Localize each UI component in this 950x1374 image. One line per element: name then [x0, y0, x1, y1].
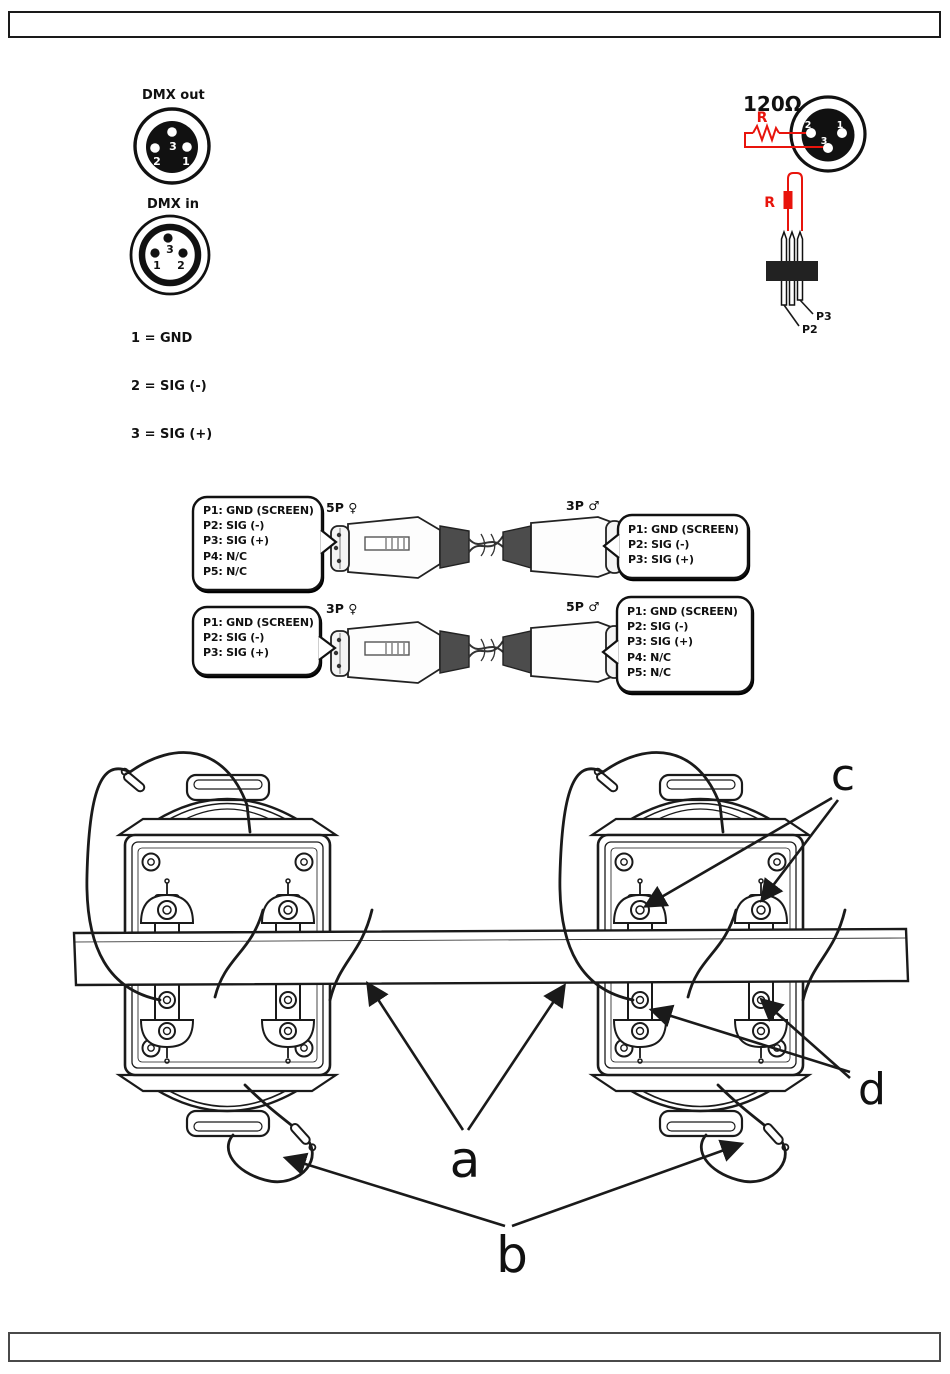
connector-gender-label-right: 5P ♂ [566, 599, 599, 614]
resistor-label-top: R [757, 110, 768, 126]
legend-line-3: 3 = SIG (+) [131, 427, 212, 443]
callout-letter-d: d [858, 1064, 886, 1115]
pin2-number: 2 [153, 155, 161, 168]
pin3-number: 3 [821, 136, 828, 147]
callout-line: P2: SIG (-) [203, 630, 314, 645]
callout-line: P3: SIG (+) [203, 645, 314, 660]
right-pinout-callout: P1: GND (SCREEN) P2: SIG (-) P3: SIG (+) [628, 522, 739, 568]
left-pinout-callout: P1: GND (SCREEN) P2: SIG (-) P3: SIG (+)… [203, 503, 314, 579]
dmx-out-male-xlr-diagram: 3 2 1 [126, 103, 218, 191]
footer-box [8, 1332, 941, 1362]
header-pin-p3-label: P3 [816, 310, 832, 323]
callout-line: P2: SIG (-) [628, 537, 739, 552]
callout-line: P5: N/C [203, 564, 314, 579]
left-pinout-callout: P1: GND (SCREEN) P2: SIG (-) P3: SIG (+) [203, 615, 314, 661]
callout-letter-c: c [831, 750, 855, 801]
adapter-cable-3f-5m: 3P ♀ 5P ♂ P1: GND (SCREEN) P2: SIG (-) P… [190, 595, 760, 710]
truss-bar [74, 929, 908, 985]
pin1-number: 1 [837, 120, 844, 131]
resistor-label-bottom: R [764, 195, 775, 211]
callout-line: P1: GND (SCREEN) [203, 615, 314, 630]
pin3-number: 3 [166, 243, 174, 256]
pin1-number: 1 [153, 259, 161, 272]
pin3-number: 3 [169, 140, 177, 153]
callout-line: P1: GND (SCREEN) [627, 604, 738, 619]
callout-line: P3: SIG (+) [627, 634, 738, 649]
callout-line: P1: GND (SCREEN) [203, 503, 314, 518]
legend-line-2: 2 = SIG (-) [131, 379, 212, 395]
callout-line: P1: GND (SCREEN) [628, 522, 739, 537]
resistance-value: 120Ω [743, 92, 802, 116]
callout-line: P4: N/C [203, 549, 314, 564]
callout-line: P3: SIG (+) [203, 533, 314, 548]
pin-legend: 1 = GND 2 = SIG (-) 3 = SIG (+) [131, 299, 212, 475]
terminator-diagram: 120Ω R 2 1 3 R P2 P3 [718, 83, 898, 348]
callout-letter-a: a [450, 1131, 481, 1189]
header-body [766, 261, 818, 281]
legend-line-1: 1 = GND [131, 331, 212, 347]
pin2-number: 2 [805, 120, 812, 131]
truss-mounting-diagram: a b c d [50, 712, 950, 1292]
header-pin-p2-label: P2 [802, 323, 818, 336]
resistor-body [784, 191, 793, 209]
manual-page: DMX out 3 2 1 DMX in 3 1 2 1 = GND 2 = S… [0, 0, 950, 1374]
callout-letter-b: b [496, 1226, 528, 1284]
callout-line: P4: N/C [627, 650, 738, 665]
adapter-cable-5f-3m: 5P ♀ 3P ♂ P1: GND (SCREEN) P2: SIG (-) P… [190, 490, 760, 605]
dmx-out-label: DMX out [142, 88, 205, 103]
pin1-number: 1 [182, 155, 190, 168]
callout-line: P5: N/C [627, 665, 738, 680]
callout-line: P3: SIG (+) [628, 552, 739, 567]
header-box [8, 11, 941, 38]
pin2-number: 2 [177, 259, 185, 272]
right-pinout-callout: P1: GND (SCREEN) P2: SIG (-) P3: SIG (+)… [627, 604, 738, 680]
callout-line: P2: SIG (-) [203, 518, 314, 533]
connector-gender-label-left: 3P ♀ [326, 601, 357, 616]
callout-line: P2: SIG (-) [627, 619, 738, 634]
connector-gender-label-left: 5P ♀ [326, 500, 357, 515]
dmx-in-female-xlr-diagram: 3 1 2 [124, 210, 218, 302]
connector-gender-label-right: 3P ♂ [566, 498, 599, 513]
